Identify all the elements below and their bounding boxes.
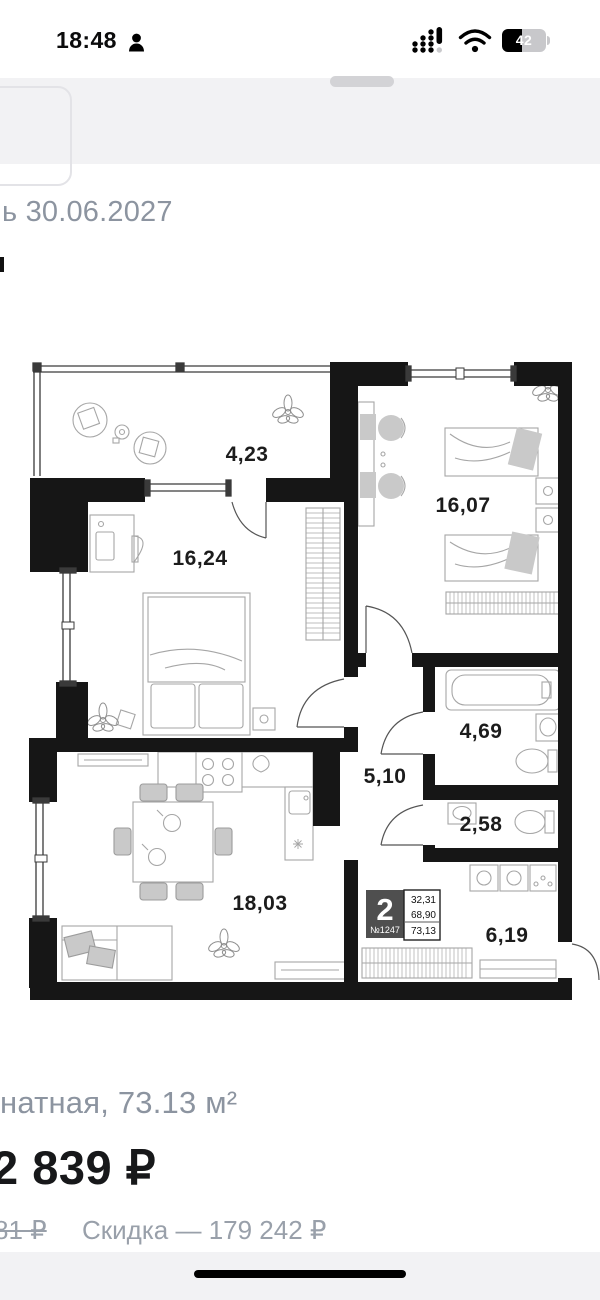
room-label-bedroom-1: 16,24 xyxy=(172,547,227,570)
furniture-layer xyxy=(62,373,565,980)
old-price: 81 ₽ xyxy=(0,1215,47,1246)
user-icon xyxy=(127,33,146,53)
unit-badge[interactable]: 2 №1247 32,31 68,90 73,13 xyxy=(366,890,440,940)
room-label-kitchen-living: 18,03 xyxy=(232,892,287,915)
radiator-hatch-entry xyxy=(362,948,472,978)
completion-date: ь 30.06.2027 xyxy=(2,196,173,229)
room-label-entry: 6,19 xyxy=(486,924,529,947)
radiator-hatch xyxy=(446,592,561,614)
clock: 18:48 xyxy=(56,27,117,54)
unit-number: №1247 xyxy=(370,925,400,935)
unit-rooms-count: 2 xyxy=(376,892,393,927)
room-label-bedroom-2: 16,07 xyxy=(435,494,490,517)
cellular-signal-icon xyxy=(412,27,448,53)
battery-percent: 42 xyxy=(502,29,546,52)
discount-label: Скидка — 179 242 ₽ xyxy=(82,1215,326,1246)
room-label-hallway: 5,10 xyxy=(364,765,407,788)
wifi-icon xyxy=(458,28,492,53)
room-label-wc: 2,58 xyxy=(460,813,503,836)
listing-title: натная, 73.13 м² xyxy=(0,1085,237,1121)
app-screen: 18:48 42 xyxy=(0,0,600,1300)
windows xyxy=(33,363,516,921)
sheet-header-band xyxy=(0,78,600,164)
status-bar: 18:48 42 xyxy=(0,0,600,78)
bottom-bar xyxy=(0,1252,600,1300)
unit-area-total: 73,13 xyxy=(411,926,436,937)
card-corner xyxy=(0,86,72,186)
room-label-balcony: 4,23 xyxy=(226,443,269,466)
unit-area-living: 32,31 xyxy=(411,895,436,906)
listing-price: 2 839 ₽ xyxy=(0,1140,156,1196)
battery-icon: 42 xyxy=(502,29,550,52)
room-label-bathroom: 4,69 xyxy=(460,720,503,743)
cut-text-fragment xyxy=(0,257,4,272)
unit-area-no-balcony: 68,90 xyxy=(411,910,436,921)
appliance-row xyxy=(470,865,556,891)
floor-plan[interactable]: 4,23 16,24 16,07 4,69 5,10 2,58 18,03 6,… xyxy=(0,350,600,1010)
sheet-drag-handle[interactable] xyxy=(330,76,394,87)
wardrobe-hatch xyxy=(306,508,340,640)
home-indicator[interactable] xyxy=(194,1270,406,1278)
